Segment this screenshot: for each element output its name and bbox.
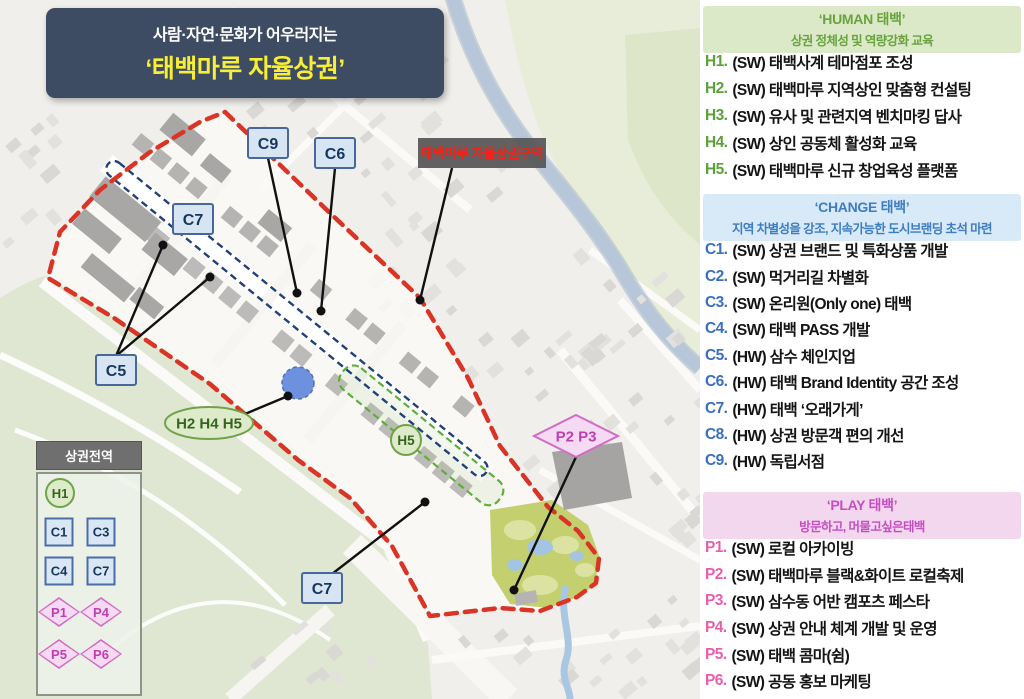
legend-chip-c1: C1 <box>45 518 74 547</box>
map-legend-body: H1 C1C3C4C7P1P4P5P6 <box>36 472 142 696</box>
program-item-text: (HW) 삼수 체인지업 <box>732 345 855 367</box>
program-item-text: (SW) 유사 및 관련지역 벤치마킹 답사 <box>732 105 961 127</box>
program-item-code: C5. <box>705 347 727 365</box>
program-item: C2.(SW) 먹거리길 차별화 <box>705 263 1024 289</box>
program-item: P4.(SW) 상권 안내 체계 개발 및 운영 <box>705 615 1024 642</box>
program-item: C9.(HW) 독립서점 <box>705 448 1024 474</box>
program-item: P1.(SW) 로컬 아카이빙 <box>705 535 1024 562</box>
program-item-text: (SW) 태백 콤마(쉼) <box>731 644 849 666</box>
program-item-text: (HW) 상권 방문객 편의 개선 <box>732 424 904 446</box>
program-item-code: P1. <box>705 539 726 557</box>
section-human-items: H1.(SW) 태백사계 테마점포 조성H2.(SW) 태백마루 지역상인 맞춤… <box>705 48 1024 184</box>
section-change-items: C1.(SW) 상권 브랜드 및 특화상품 개발C2.(SW) 먹거리길 차별화… <box>705 237 1024 475</box>
marker-c7-bottom: C7 <box>302 573 342 603</box>
program-item-text: (SW) 로컬 아카이빙 <box>731 537 853 559</box>
program-item: P3.(SW) 삼수동 어반 캠포츠 페스타 <box>705 588 1024 615</box>
section-human-subtitle: 상권 정체성 및 역량강화 교육 <box>703 30 1021 49</box>
marker-c9: C9 <box>248 128 288 158</box>
program-item-text: (SW) 상권 안내 체계 개발 및 운영 <box>731 617 936 639</box>
program-item: H4.(SW) 상인 공동체 활성화 교육 <box>705 130 1024 157</box>
marker-c5-label: C5 <box>106 363 127 380</box>
program-item: H5.(SW) 태백마루 신규 창업육성 플랫폼 <box>705 157 1024 184</box>
legend-chip-p6: P6 <box>80 639 122 669</box>
program-item-text: (SW) 태백마루 신규 창업육성 플랫폼 <box>732 159 957 181</box>
program-item: P5.(SW) 태백 콤마(쉼) <box>705 641 1024 668</box>
map-legend-title: 상권전역 <box>36 441 142 470</box>
program-item: H1.(SW) 태백사계 테마점포 조성 <box>705 48 1024 75</box>
program-item: C8.(HW) 상권 방문객 편의 개선 <box>705 422 1024 448</box>
marker-p-group-label: P2 P3 <box>556 428 597 445</box>
marker-c7-top: C7 <box>173 204 213 234</box>
marker-h5-label: H5 <box>397 433 415 448</box>
program-item-code: C9. <box>705 452 727 470</box>
program-item: H2.(SW) 태백마루 지역상인 맞춤형 컨설팅 <box>705 75 1024 102</box>
program-item-code: C2. <box>705 268 727 286</box>
title-main: ‘태백마루 자율상권’ <box>46 49 444 85</box>
section-play-subtitle: 방문하고, 머물고싶은태백 <box>703 516 1021 535</box>
program-item-text: (HW) 태백 ‘오래가게’ <box>732 398 863 420</box>
program-item-code: C3. <box>705 294 727 312</box>
program-item-code: P4. <box>705 619 726 637</box>
program-item-text: (HW) 독립서점 <box>732 450 824 472</box>
marker-c6: C6 <box>315 138 355 168</box>
section-change-title: ‘CHANGE 태백’ <box>703 197 1021 217</box>
program-item-code: C4. <box>705 320 727 338</box>
legend-chip-p1: P1 <box>38 597 80 627</box>
program-item: C6.(HW) 태백 Brand Identity 공간 조성 <box>705 369 1024 395</box>
program-item: C5.(HW) 삼수 체인지업 <box>705 343 1024 369</box>
marker-c7-bottom-label: C7 <box>312 581 333 598</box>
program-item: P2.(SW) 태백마루 블랙&화이트 로컬축제 <box>705 562 1024 589</box>
section-play: ‘PLAY 태백’ 방문하고, 머물고싶은태백 P1.(SW) 로컬 아카이빙P… <box>700 492 1024 539</box>
program-item: C7.(HW) 태백 ‘오래가게’ <box>705 395 1024 421</box>
program-item-code: C8. <box>705 426 727 444</box>
program-item: C3.(SW) 온리원(Only one) 태백 <box>705 290 1024 316</box>
program-item-text: (SW) 태백마루 지역상인 맞춤형 컨설팅 <box>732 78 971 100</box>
program-item-code: H5. <box>705 161 727 179</box>
program-panel: ‘HUMAN 태백’ 상권 정체성 및 역량강화 교육 H1.(SW) 태백사계… <box>700 0 1024 699</box>
program-item-text: (HW) 태백 Brand Identity 공간 조성 <box>732 371 958 393</box>
program-item-code: C6. <box>705 373 727 391</box>
program-item-code: H2. <box>705 80 727 98</box>
section-human-title: ‘HUMAN 태백’ <box>703 9 1021 29</box>
legend-chip-p4: P4 <box>80 597 122 627</box>
area-label: 태백마루 자율상권구역 <box>418 138 546 168</box>
section-play-items: P1.(SW) 로컬 아카이빙P2.(SW) 태백마루 블랙&화이트 로컬축제P… <box>705 535 1024 695</box>
program-item-code: P6. <box>705 672 726 690</box>
marker-h-group: H2 H4 H5 <box>165 407 253 439</box>
marker-h-group-label: H2 H4 H5 <box>176 415 242 432</box>
legend-chip-h1: H1 <box>45 478 75 508</box>
program-item-text: (SW) 공동 홍보 마케팅 <box>731 670 871 692</box>
marker-c5: C5 <box>96 355 136 385</box>
program-item: P6.(SW) 공동 홍보 마케팅 <box>705 668 1024 695</box>
marker-c9-label: C9 <box>258 136 279 153</box>
program-item-text: (SW) 태백사계 테마점포 조성 <box>732 51 913 73</box>
section-human: ‘HUMAN 태백’ 상권 정체성 및 역량강화 교육 H1.(SW) 태백사계… <box>700 6 1024 53</box>
infographic: C9 C6 C7 C5 C7 <box>0 0 1024 699</box>
legend-chip-c4: C4 <box>45 557 74 586</box>
program-item-code: H3. <box>705 107 727 125</box>
program-item-text: (SW) 상권 브랜드 및 특화상품 개발 <box>732 239 947 261</box>
program-item-code: H1. <box>705 53 727 71</box>
program-item-text: (SW) 태백마루 블랙&화이트 로컬축제 <box>731 564 963 586</box>
program-item: C4.(SW) 태백 PASS 개발 <box>705 316 1024 342</box>
program-item-text: (SW) 태백 PASS 개발 <box>732 318 869 340</box>
map-legend: 상권전역 H1 C1C3C4C7P1P4P5P6 <box>36 441 142 696</box>
program-item: C1.(SW) 상권 브랜드 및 특화상품 개발 <box>705 237 1024 263</box>
legend-chip-c7: C7 <box>87 557 116 586</box>
section-play-title: ‘PLAY 태백’ <box>703 495 1021 515</box>
title-box: 사람·자연·문화가 어우러지는 ‘태백마루 자율상권’ <box>46 8 444 98</box>
program-item-code: H4. <box>705 134 727 152</box>
section-change-subtitle: 지역 차별성을 강조, 지속가능한 도시브랜딩 초석 마련 <box>703 218 1021 237</box>
section-change-header: ‘CHANGE 태백’ 지역 차별성을 강조, 지속가능한 도시브랜딩 초석 마… <box>703 194 1021 241</box>
section-human-header: ‘HUMAN 태백’ 상권 정체성 및 역량강화 교육 <box>703 6 1021 53</box>
marker-c6-label: C6 <box>325 146 346 163</box>
area-label-text: 태백마루 자율상권구역 <box>421 145 543 161</box>
section-change: ‘CHANGE 태백’ 지역 차별성을 강조, 지속가능한 도시브랜딩 초석 마… <box>700 194 1024 241</box>
program-item-text: (SW) 삼수동 어반 캠포츠 페스타 <box>731 590 929 612</box>
section-play-header: ‘PLAY 태백’ 방문하고, 머물고싶은태백 <box>703 492 1021 539</box>
program-item-code: C7. <box>705 400 727 418</box>
large-building <box>552 442 632 510</box>
program-item-code: P2. <box>705 566 726 584</box>
marker-h5: H5 <box>391 425 421 455</box>
program-item-code: C1. <box>705 241 727 259</box>
program-item-code: P5. <box>705 646 726 664</box>
district-map: C9 C6 C7 C5 C7 <box>0 0 700 699</box>
legend-chip-p5: P5 <box>38 639 80 669</box>
marker-c7-top-label: C7 <box>183 212 204 229</box>
program-item-text: (SW) 온리원(Only one) 태백 <box>732 292 911 314</box>
title-subtitle: 사람·자연·문화가 어우러지는 <box>46 21 444 45</box>
program-item: H3.(SW) 유사 및 관련지역 벤치마킹 답사 <box>705 102 1024 129</box>
program-item-text: (SW) 먹거리길 차별화 <box>732 266 868 288</box>
program-item-text: (SW) 상인 공동체 활성화 교육 <box>732 132 916 154</box>
legend-chip-c3: C3 <box>87 518 116 547</box>
program-item-code: P3. <box>705 592 726 610</box>
